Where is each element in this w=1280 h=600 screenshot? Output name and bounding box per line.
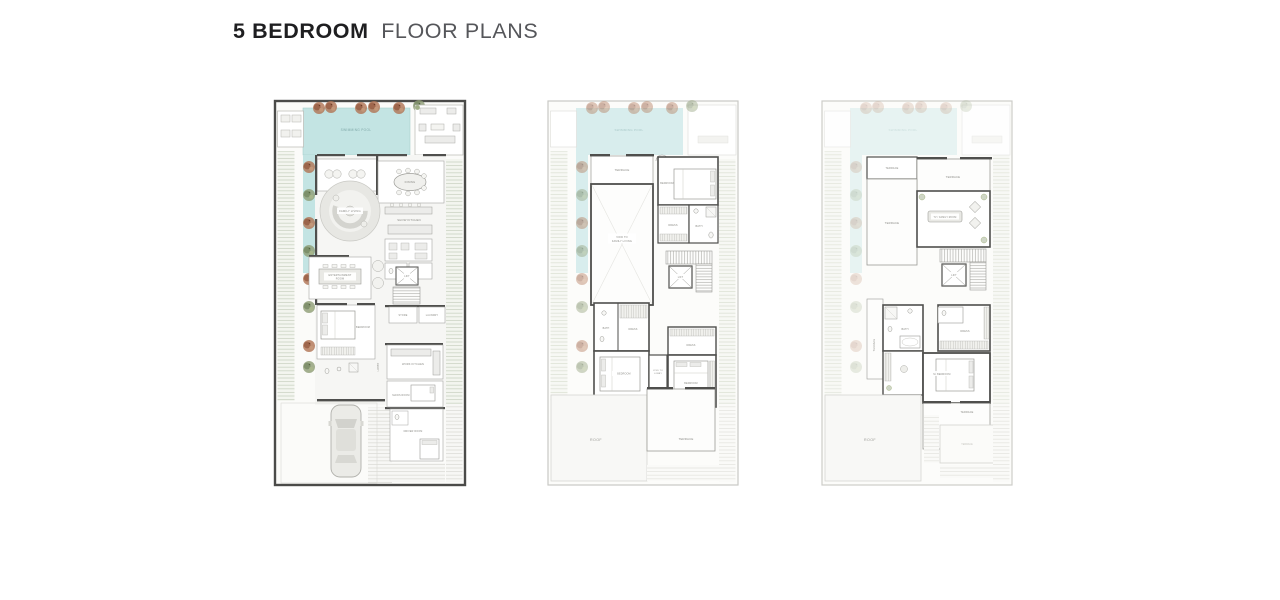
label-bedroom-top: BEDROOM: [660, 182, 673, 185]
label-terrace-upper: TERRACE: [886, 167, 899, 170]
page: { "header": { "title_bold": "5 BEDROOM",…: [0, 0, 1280, 600]
wardrobe: [940, 341, 988, 349]
void-lobby: VOID TO LOBBY: [649, 355, 667, 391]
label-bath-mid: BATH: [603, 327, 610, 330]
windshield: [335, 419, 357, 428]
bath-top: BATH: [689, 205, 718, 243]
stairs-run-side: [970, 262, 986, 290]
label-lift: LIFT: [951, 274, 957, 277]
wardrobe: [321, 347, 355, 355]
label-dress-mid: DRESS: [629, 328, 638, 331]
bath-dress-cluster: BATH DRESS: [594, 303, 649, 351]
dressing-room: DRESS: [938, 305, 990, 351]
label-lift: LIFT: [404, 275, 410, 278]
label-tv-room: TV / FAMILY ROOM: [934, 216, 957, 219]
label-m-bedroom: M. BEDROOM: [933, 373, 950, 376]
plant: [919, 194, 925, 200]
label-dress-top: DRESS: [668, 224, 678, 227]
plant: [981, 194, 987, 200]
roof-area: ROOF: [825, 395, 921, 481]
armchair: [453, 124, 460, 131]
terrace-side: TERRACE: [867, 299, 883, 379]
floor-plan-second: SWIMMING POOL TERRACE TERRACE TERRACE TV…: [820, 99, 1014, 487]
floor-plan-first: SWIMMING POOL TERRACE VOID TO FAMILY LIV…: [546, 99, 740, 487]
chair: [901, 366, 908, 373]
armchair: [419, 124, 426, 131]
toilet: [888, 326, 892, 332]
sofa: [425, 136, 455, 143]
void-family-living: VOID TO FAMILY LIVING: [591, 184, 653, 305]
bedroom-top: BEDROOM: [658, 157, 718, 205]
label-dress-right: DRESS: [687, 344, 696, 347]
sink: [694, 209, 698, 213]
label-store: STORE: [399, 314, 408, 317]
driver-room: DRIVER ROOM: [390, 409, 443, 461]
lift: LIFT: [669, 266, 692, 288]
label-lift: LIFT: [678, 276, 684, 279]
dress-right: DRESS: [668, 327, 716, 355]
label-swimming-pool: SWIMMING POOL: [888, 128, 917, 132]
terrace-top: TERRACE: [590, 154, 654, 184]
label-terrace-ghost: TERRACE: [961, 443, 973, 446]
lift: LIFT: [396, 267, 418, 285]
kitchen-counter: [385, 207, 432, 214]
wardrobe: [984, 307, 989, 339]
paving-bottom: [392, 463, 445, 482]
toilet: [600, 336, 604, 342]
master-bath: BATH: [883, 305, 923, 351]
sink: [602, 311, 606, 315]
store-laundry: STORE LAUNDRY: [389, 307, 445, 323]
page-title-light: FLOOR PLANS: [381, 19, 538, 43]
paving-right: [993, 404, 1010, 482]
terrace-upper: TERRACE: [867, 157, 917, 179]
page-title: 5 BEDROOM FLOOR PLANS: [233, 19, 538, 44]
page-title-bold: 5 BEDROOM: [233, 19, 369, 43]
family-living: FAMILY LIVING: [320, 181, 380, 241]
lift: LIFT: [942, 264, 966, 286]
label-bedroom-left: BEDROOM: [617, 373, 630, 376]
label-terrace-side: TERRACE: [873, 339, 876, 352]
label-maids-room: MAIDS ROOM: [392, 394, 409, 397]
paving-left: [924, 415, 939, 463]
label-family-living: FAMILY LIVING: [339, 209, 361, 213]
garden-trellis-left: [278, 151, 295, 401]
coffee-table: [431, 124, 444, 130]
plant: [887, 386, 892, 391]
paving-bottom: [647, 465, 735, 481]
toilet: [709, 232, 713, 238]
bed: [674, 169, 716, 199]
label-bath-top: BATH: [695, 225, 702, 228]
floor-plan-ground: SWIMMING POOL: [273, 99, 467, 487]
label-driver-room: DRIVER ROOM: [404, 430, 423, 433]
master-bedroom: M. BEDROOM: [923, 353, 990, 403]
roof-area: ROOF: [551, 395, 647, 481]
lounger-deck: [278, 111, 304, 147]
wardrobe: [620, 305, 647, 318]
stairs-run-top: [940, 249, 986, 262]
vanity-room: [883, 351, 923, 395]
toilet: [325, 368, 329, 374]
paving-bottom: [940, 465, 997, 478]
label-laundry: LAUNDRY: [426, 314, 439, 317]
label-void-2: FAMILY LIVING: [612, 239, 632, 243]
terrace-ghost: TERRACE: [940, 425, 994, 463]
label-dining: DINING: [405, 180, 416, 184]
sink: [908, 309, 912, 313]
label-dress: DRESS: [960, 330, 970, 333]
paving-right: [446, 404, 463, 482]
toilet: [389, 268, 393, 274]
label-swimming-pool: SWIMMING POOL: [614, 128, 643, 132]
stairs-run-side: [696, 264, 712, 292]
paving-mid: [368, 407, 392, 483]
plant: [415, 105, 420, 110]
label-bath: BATH: [901, 328, 908, 331]
terrace-left: TERRACE: [867, 179, 917, 265]
label-terrace-bottom: TERRACE: [961, 411, 974, 414]
garden-trellis-right: [446, 159, 463, 404]
label-terrace-top-right: TERRACE: [946, 175, 960, 179]
label-terrace-top: TERRACE: [615, 168, 630, 172]
label-work-kitchen: WORK KITCHEN: [402, 362, 424, 366]
tv-family-room: TV / FAMILY ROOM: [917, 191, 990, 247]
label-roof: ROOF: [864, 438, 876, 442]
toilet: [942, 310, 946, 315]
label-voidlobby-1: VOID TO: [653, 370, 663, 372]
maids-room: MAIDS ROOM: [387, 381, 443, 407]
terrace-top-right: TERRACE: [917, 157, 992, 191]
label-voidlobby-2: LOBBY: [654, 373, 662, 375]
terrace-bottom: TERRACE: [647, 387, 715, 451]
label-show-kitchen: SHOW KITCHEN: [397, 218, 421, 222]
work-kitchen: WORK KITCHEN: [387, 345, 443, 379]
stairs-run-top: [666, 251, 712, 264]
plant: [981, 237, 987, 243]
dress-top: DRESS: [658, 205, 689, 243]
label-terrace-bottom: TERRACE: [679, 437, 694, 441]
label-void-1: VOID TO: [616, 235, 628, 239]
car: [329, 405, 364, 477]
sink: [337, 367, 341, 371]
stairs: [393, 287, 420, 304]
label-roof: ROOF: [590, 438, 602, 442]
label-entertainment-2: ROOM: [336, 277, 344, 280]
label-swimming-pool: SWIMMING POOL: [341, 128, 372, 132]
dining-room: DINING: [378, 161, 444, 203]
label-bedroom: BEDROOM: [356, 326, 370, 329]
label-lobby: LOBBY: [377, 362, 380, 371]
rear-window: [335, 455, 357, 463]
entry-lounge: [415, 105, 463, 155]
label-bedroom-right: BEDROOM: [684, 382, 697, 385]
label-terrace-left: TERRACE: [885, 221, 899, 225]
